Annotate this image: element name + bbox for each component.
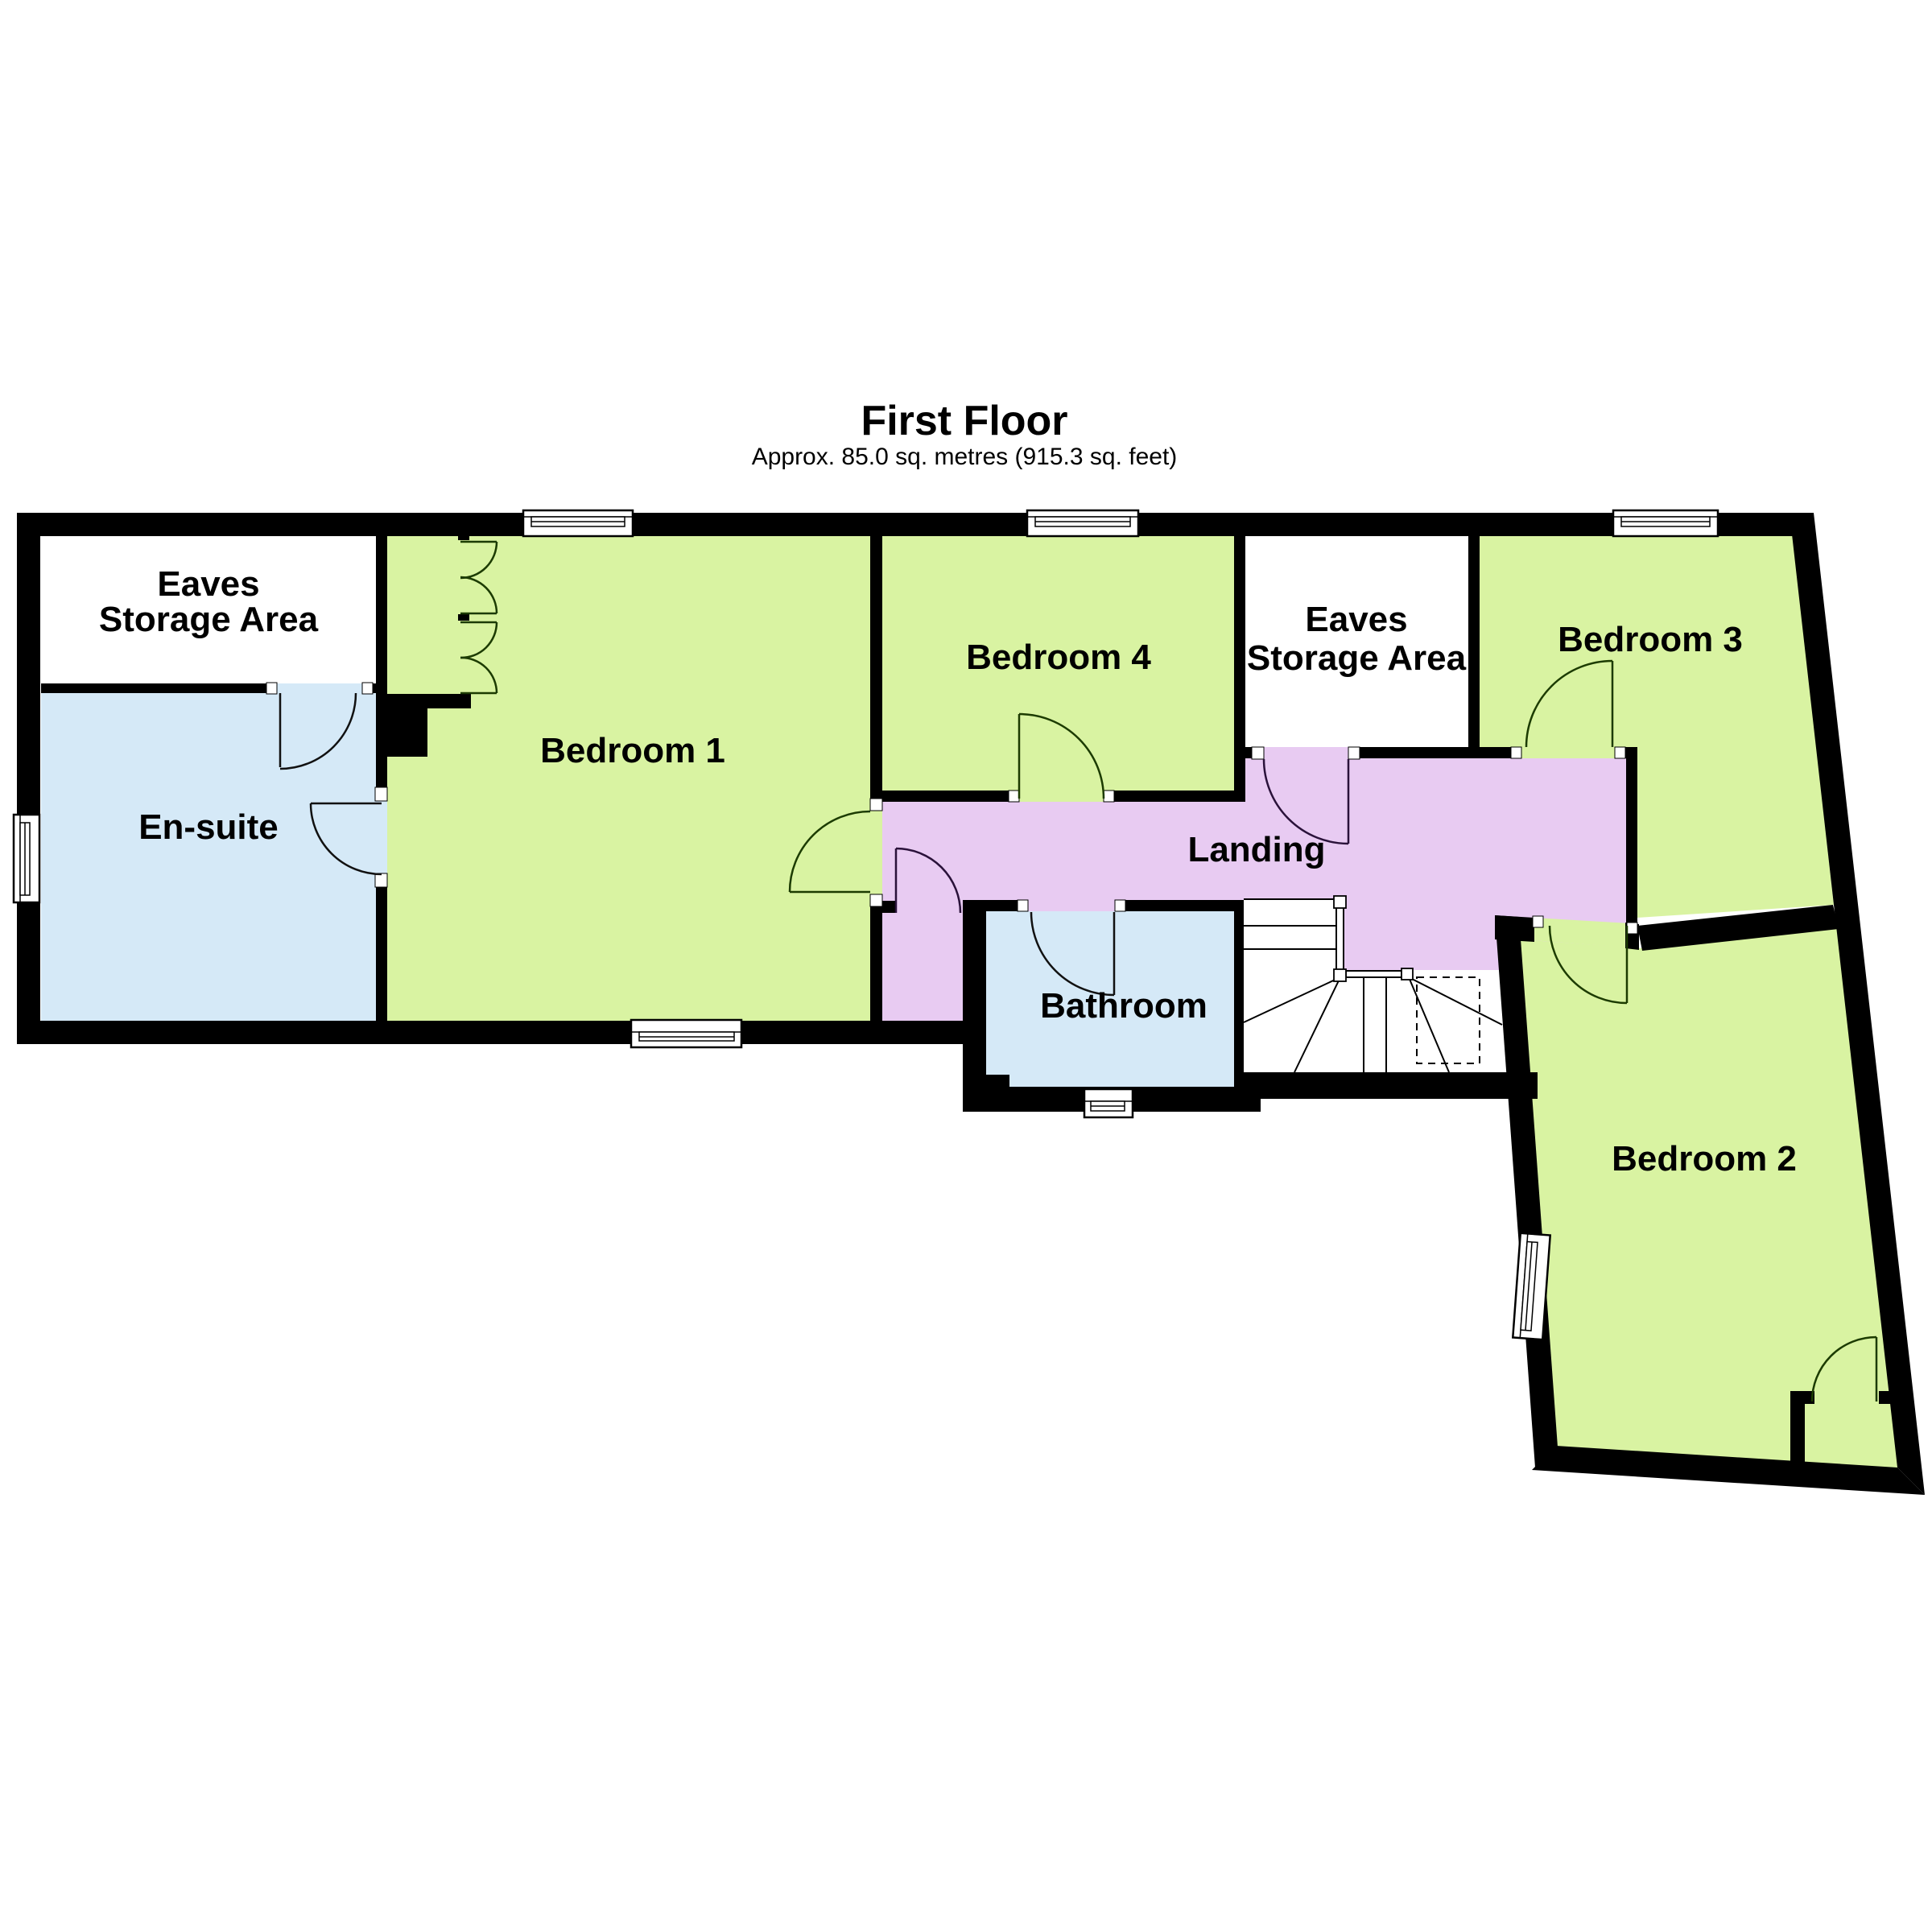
svg-text:First Floor: First Floor bbox=[861, 398, 1067, 444]
svg-text:Eaves: Eaves bbox=[157, 564, 259, 604]
svg-text:Storage Area: Storage Area bbox=[99, 600, 319, 639]
svg-text:Bedroom 2: Bedroom 2 bbox=[1612, 1139, 1797, 1179]
svg-text:Landing: Landing bbox=[1187, 830, 1325, 869]
svg-text:En-suite: En-suite bbox=[138, 807, 279, 847]
svg-text:Bedroom 3: Bedroom 3 bbox=[1558, 620, 1743, 659]
svg-text:Bedroom 4: Bedroom 4 bbox=[966, 638, 1151, 677]
svg-text:Eaves: Eaves bbox=[1305, 600, 1407, 639]
svg-text:Bathroom: Bathroom bbox=[1040, 986, 1207, 1026]
svg-text:Approx. 85.0 sq. metres (915.3: Approx. 85.0 sq. metres (915.3 sq. feet) bbox=[752, 444, 1178, 470]
svg-text:Bedroom 1: Bedroom 1 bbox=[540, 731, 725, 770]
svg-text:Storage Area: Storage Area bbox=[1247, 638, 1467, 678]
